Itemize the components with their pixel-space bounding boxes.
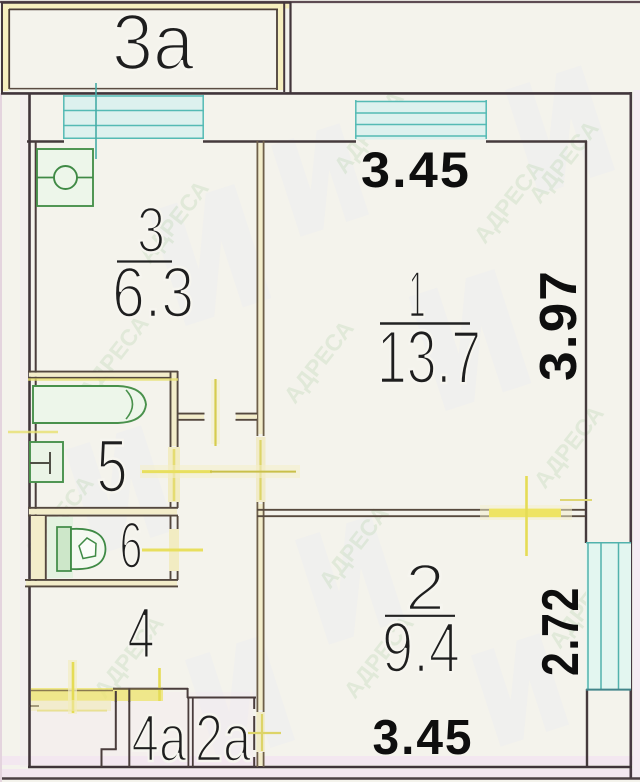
- svg-text:2a: 2a: [195, 701, 252, 776]
- svg-text:6: 6: [120, 508, 143, 582]
- svg-text:3a: 3a: [112, 0, 194, 86]
- svg-text:6.3: 6.3: [112, 254, 194, 333]
- svg-text:5: 5: [97, 424, 128, 508]
- svg-text:4a: 4a: [132, 701, 188, 776]
- svg-text:3.97: 3.97: [530, 269, 588, 381]
- svg-text:2.72: 2.72: [532, 586, 590, 676]
- svg-text:3.45: 3.45: [361, 142, 471, 198]
- svg-text:4: 4: [128, 594, 155, 674]
- svg-text:13.7: 13.7: [377, 315, 481, 399]
- svg-text:3.45: 3.45: [373, 711, 474, 765]
- svg-text:9.4: 9.4: [382, 609, 460, 688]
